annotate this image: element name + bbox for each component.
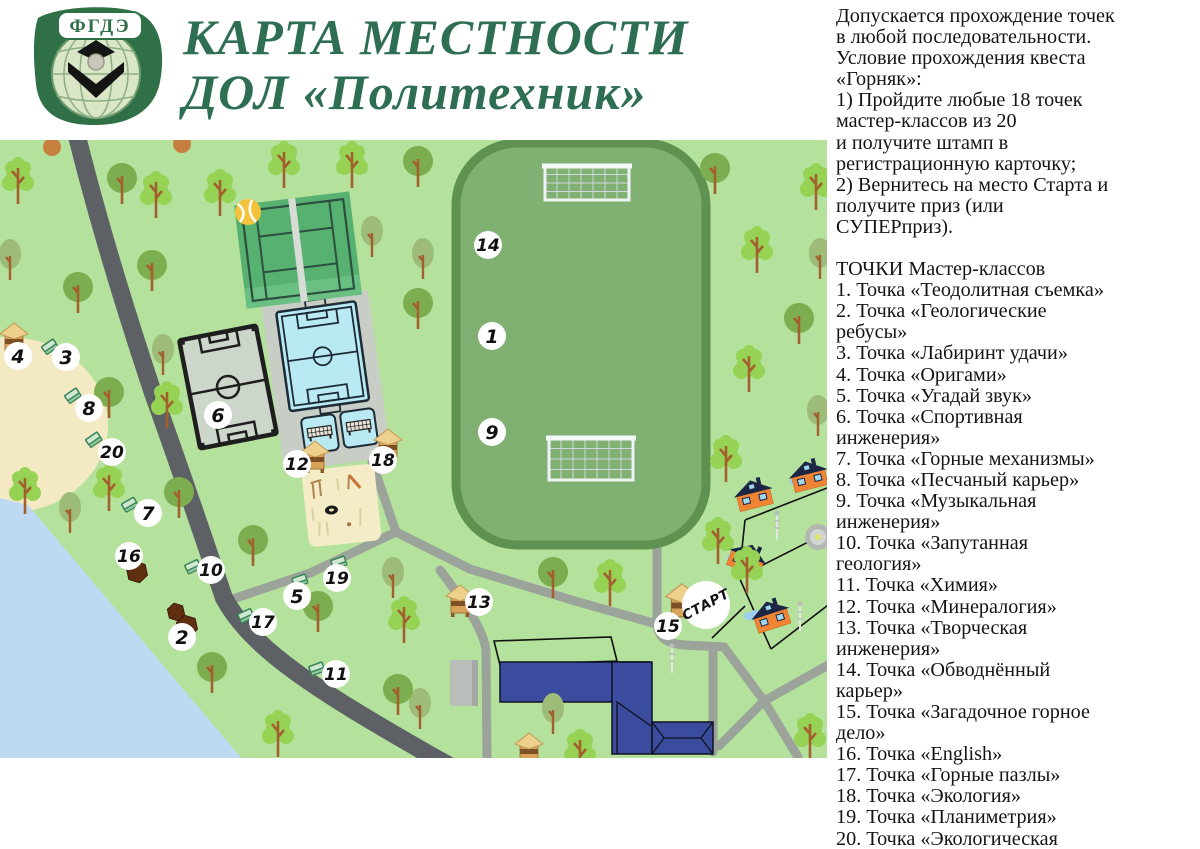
- map-marker-number: 11: [324, 665, 348, 685]
- points-list-item: 10. Точка «Запутанная геология»: [836, 533, 1188, 575]
- points-list: 1. Точка «Теодолитная съемка»2. Точка «Г…: [836, 280, 1188, 849]
- map-marker: 11: [322, 660, 350, 688]
- page-title-line1: КАРТА МЕСТНОСТИ: [183, 9, 689, 65]
- map-marker-number: 13: [467, 593, 491, 613]
- map-marker-number: 16: [117, 547, 141, 567]
- volleyball-court: [340, 408, 379, 448]
- map-marker: 2: [168, 623, 196, 651]
- tennis-ball-icon: [235, 199, 261, 225]
- points-list-item: 18. Точка «Экология»: [836, 786, 1188, 807]
- points-list-item: 13. Точка «Творческая инженерия»: [836, 618, 1188, 660]
- points-list-title: ТОЧКИ Мастер-классов: [836, 259, 1188, 280]
- map-marker-number: 14: [476, 236, 500, 256]
- map-marker: 20: [98, 438, 126, 466]
- points-list-item: 14. Точка «Обводнённый карьер»: [836, 660, 1188, 702]
- map-marker-number: 15: [656, 617, 680, 637]
- rules-panel: Допускается прохождение точек в любой по…: [836, 6, 1188, 849]
- page-title: КАРТА МЕСТНОСТИ ДОЛ «Политехник»: [183, 10, 833, 120]
- points-list-item: 7. Точка «Горные механизмы»: [836, 449, 1188, 470]
- map-marker-number: 19: [325, 569, 349, 589]
- map-marker: 19: [323, 564, 351, 592]
- fgde-logo: ФГДЭ: [30, 4, 168, 128]
- map-marker-number: 1: [485, 326, 498, 348]
- rules-text: Допускается прохождение точек в любой по…: [836, 6, 1188, 238]
- map-marker-number: 9: [485, 422, 498, 444]
- points-list-item: 12. Точка «Минералогия»: [836, 597, 1188, 618]
- map-marker: 9: [478, 418, 506, 446]
- map-marker-number: 18: [371, 451, 395, 471]
- map-marker-number: 7: [141, 503, 155, 525]
- points-list-item: 19. Точка «Планиметрия»: [836, 807, 1188, 828]
- points-list-item: 6. Точка «Спортивная инженерия»: [836, 407, 1188, 449]
- map-marker: 7: [134, 499, 162, 527]
- map-marker: 1: [478, 322, 506, 350]
- map-svg: СТАРТ1419643820716102175191112181315: [0, 140, 827, 758]
- map-marker: 3: [52, 343, 80, 371]
- points-list-item: 16. Точка «English»: [836, 744, 1188, 765]
- map-marker: 4: [4, 342, 32, 370]
- camp-map: СТАРТ1419643820716102175191112181315: [0, 140, 827, 758]
- map-marker: 18: [369, 446, 397, 474]
- points-list-item: 2. Точка «Геологические ребусы»: [836, 301, 1188, 343]
- map-marker: 8: [75, 394, 103, 422]
- map-marker: 15: [654, 612, 682, 640]
- page: ФГДЭ КАРТА МЕСТНОСТИ ДОЛ «Политехник» До…: [0, 0, 1200, 849]
- map-marker-number: 20: [100, 443, 124, 463]
- spacer: [836, 238, 1188, 259]
- points-list-item: 8. Точка «Песчаный карьер»: [836, 470, 1188, 491]
- map-marker: 13: [465, 588, 493, 616]
- map-marker: 14: [474, 231, 502, 259]
- points-list-item: 9. Точка «Музыкальная инженерия»: [836, 491, 1188, 533]
- map-marker-number: 5: [290, 586, 303, 608]
- map-marker: 16: [115, 542, 143, 570]
- map-marker-number: 17: [251, 613, 275, 633]
- map-marker: 17: [249, 608, 277, 636]
- page-title-line2: ДОЛ «Политехник»: [183, 64, 647, 120]
- map-marker: 6: [204, 401, 232, 429]
- points-list-item: 5. Точка «Угадай звук»: [836, 386, 1188, 407]
- points-list-item: 15. Точка «Загадочное горное дело»: [836, 702, 1188, 744]
- points-list-item: 11. Точка «Химия»: [836, 575, 1188, 596]
- map-marker: 12: [283, 450, 311, 478]
- map-marker-number: 2: [175, 627, 188, 649]
- points-list-item: 3. Точка «Лабиринт удачи»: [836, 343, 1188, 364]
- points-list-item: 20. Точка «Экологическая загадка»: [836, 829, 1188, 849]
- map-marker: 5: [283, 582, 311, 610]
- playground: [301, 463, 382, 547]
- map-marker-number: 3: [59, 347, 72, 369]
- map-marker: 10: [197, 556, 225, 584]
- points-list-item: 4. Точка «Оригами»: [836, 365, 1188, 386]
- fgde-logo-emblem: ФГДЭ: [30, 4, 168, 128]
- map-marker-number: 6: [211, 405, 224, 427]
- map-marker-number: 12: [285, 455, 309, 475]
- logo-sphere: [88, 54, 104, 70]
- logo-text: ФГДЭ: [69, 16, 130, 37]
- map-marker-number: 10: [199, 561, 223, 581]
- points-list-item: 17. Точка «Горные пазлы»: [836, 765, 1188, 786]
- points-list-item: 1. Точка «Теодолитная съемка»: [836, 280, 1188, 301]
- map-marker-number: 4: [10, 346, 24, 368]
- map-marker-number: 8: [82, 398, 95, 420]
